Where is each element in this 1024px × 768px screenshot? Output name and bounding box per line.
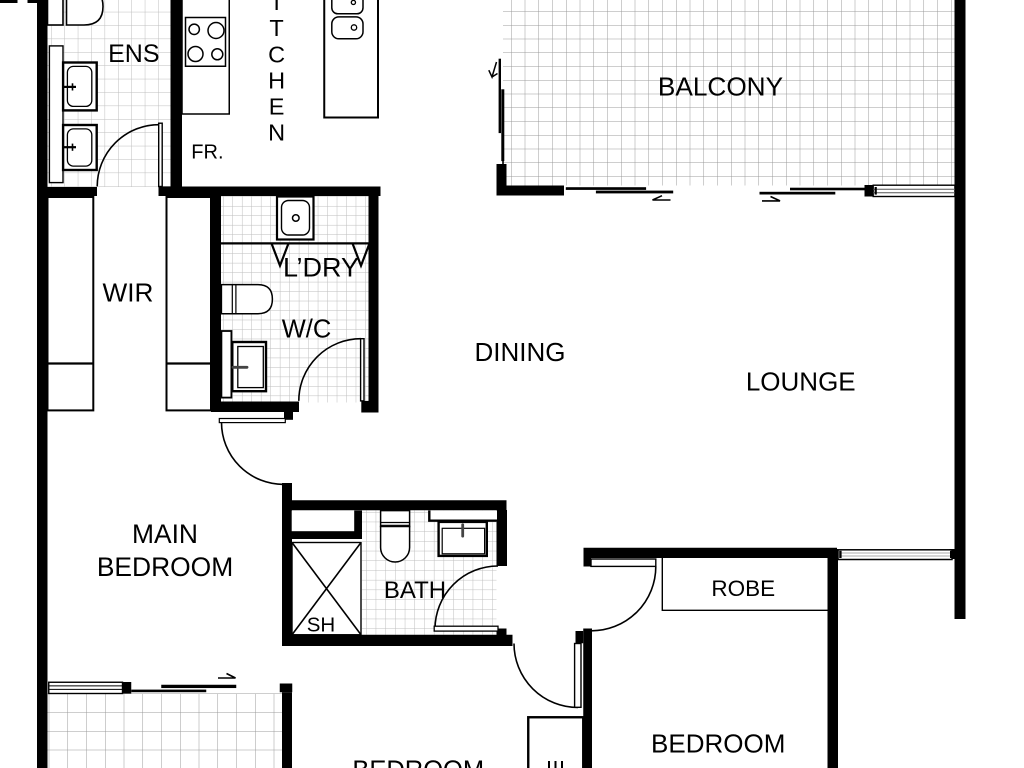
svg-text:T: T <box>269 15 283 41</box>
svg-text:W/C: W/C <box>282 316 332 344</box>
svg-text:BATH: BATH <box>384 577 446 604</box>
svg-text:C: C <box>268 41 285 67</box>
svg-text:BALCONY: BALCONY <box>658 72 783 102</box>
svg-text:I: I <box>273 0 280 15</box>
svg-text:BEDROOM: BEDROOM <box>97 552 233 582</box>
svg-text:DINING: DINING <box>475 337 566 367</box>
svg-text:BEDROOM: BEDROOM <box>651 729 785 759</box>
svg-text:MAIN: MAIN <box>132 519 198 549</box>
svg-text:N: N <box>268 120 285 146</box>
svg-text:WIR: WIR <box>103 278 154 308</box>
svg-text:SH: SH <box>307 614 335 637</box>
svg-text:L’DRY: L’DRY <box>283 253 359 283</box>
svg-text:ROBE: ROBE <box>711 576 775 601</box>
svg-text:BEDROOM: BEDROOM <box>352 757 484 768</box>
svg-text:ENS: ENS <box>108 40 159 68</box>
svg-text:LOUNGE: LOUNGE <box>746 367 856 397</box>
svg-text:H: H <box>268 67 285 93</box>
svg-text:FR.: FR. <box>191 142 223 164</box>
svg-text:E: E <box>269 93 285 119</box>
